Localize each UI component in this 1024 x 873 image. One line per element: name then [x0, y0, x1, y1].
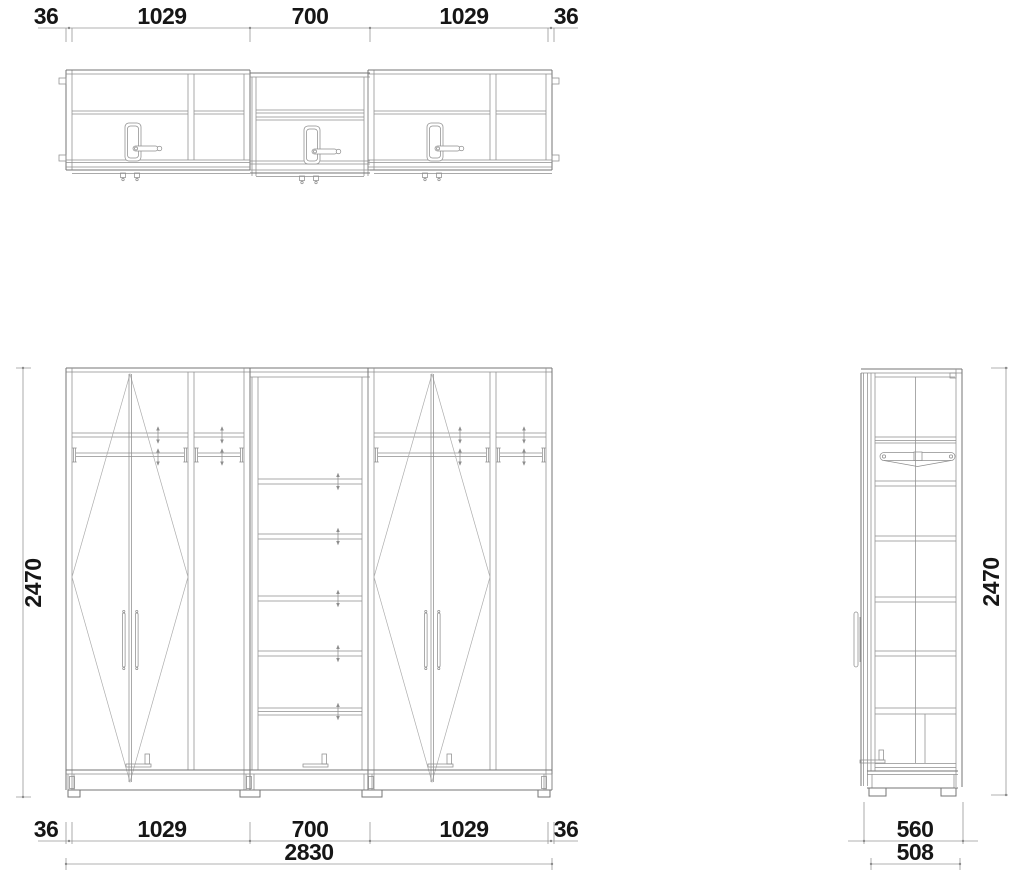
front-middle-section [250, 377, 370, 770]
wall-tab [552, 155, 559, 161]
wall-tab [59, 155, 66, 161]
dim-label-top-gap-right: 36 [554, 3, 579, 29]
dim-label-top-middle-bay: 700 [292, 3, 329, 29]
dim-label-bottom-right-bay: 1029 [439, 816, 488, 842]
dim-label-height-right: 2470 [978, 557, 1004, 606]
front-base [66, 770, 552, 797]
wall-tab [59, 78, 66, 84]
wall-tab [552, 78, 559, 84]
dim-label-bottom-left-bay: 1029 [137, 816, 186, 842]
dim-label-bottom-gap-right: 36 [554, 816, 579, 842]
foot [869, 788, 886, 796]
right-height-dimension: 2470 [978, 367, 1008, 796]
dim-label-overall-width: 2830 [284, 839, 333, 865]
side-door-handle [854, 612, 860, 667]
drawing-sheet: 36 1029 700 1029 36 36 1029 700 1029 36 … [0, 0, 1024, 873]
side-view [854, 369, 962, 796]
foot [68, 790, 80, 797]
plan-view [59, 70, 559, 184]
dim-label-height-left: 2470 [20, 558, 46, 607]
front-view [66, 368, 552, 797]
dim-label-top-right-bay: 1029 [439, 3, 488, 29]
wardrobe-technical-drawing: 36 1029 700 1029 36 36 1029 700 1029 36 … [0, 0, 1024, 873]
dim-label-top-gap-left: 36 [34, 3, 59, 29]
foot [941, 788, 956, 796]
bottom-dimensions: 36 1029 700 1029 36 2830 [34, 816, 579, 870]
top-dimensions: 36 1029 700 1029 36 [34, 3, 579, 42]
rail-bracket-side [880, 452, 955, 467]
side-depth-dimensions: 560 508 [848, 802, 978, 870]
dim-label-bottom-gap-left: 36 [34, 816, 59, 842]
plan-middle-cabinet [250, 73, 370, 184]
foot [362, 790, 382, 797]
dim-label-side-depth-inner: 508 [897, 839, 935, 865]
left-height-dimension: 2470 [16, 367, 46, 798]
foot [538, 790, 550, 797]
foot [240, 790, 260, 797]
dim-label-top-left-bay: 1029 [137, 3, 186, 29]
